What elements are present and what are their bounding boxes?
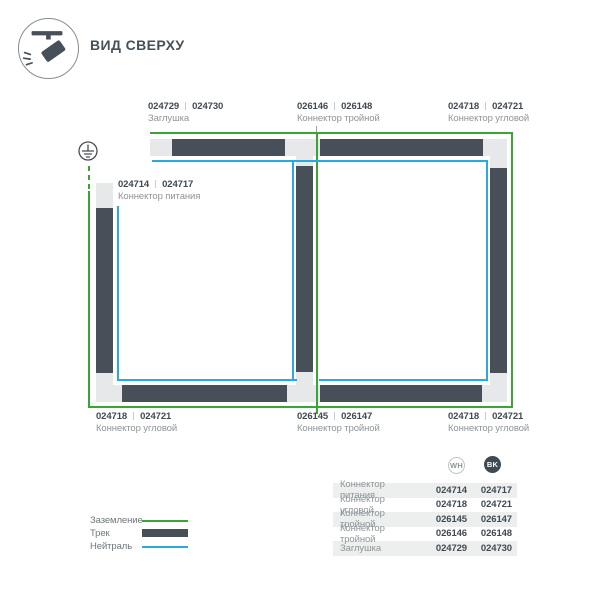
part-name: Заглушка bbox=[148, 113, 223, 124]
part-name: Коннектор питания bbox=[118, 191, 200, 202]
part-code-wh: 024718 bbox=[448, 411, 479, 422]
connector-corner-top-right-leg bbox=[490, 139, 507, 168]
track-segment-left bbox=[96, 208, 113, 373]
earth-ground-icon bbox=[78, 141, 98, 161]
ground-line-middle bbox=[316, 132, 318, 414]
connector-end-cap bbox=[150, 139, 172, 156]
cell-code-bk: 026147 bbox=[467, 514, 517, 525]
legend-label-ground: Заземление bbox=[90, 515, 143, 526]
part-name: Коннектор тройной bbox=[297, 113, 380, 124]
ground-line-left bbox=[88, 191, 90, 408]
code-separator bbox=[334, 412, 335, 420]
part-name: Коннектор угловой bbox=[448, 423, 529, 434]
part-code-bk: 026147 bbox=[341, 411, 372, 422]
part-code-wh: 024729 bbox=[148, 101, 179, 112]
connector-tee-top bbox=[285, 139, 320, 156]
part-label-end-cap: 024729024730 Заглушка bbox=[148, 101, 223, 124]
code-separator bbox=[485, 102, 486, 110]
track-segment-top-left bbox=[172, 139, 285, 156]
ground-line-left-dashed bbox=[88, 166, 90, 193]
legend-swatch-track bbox=[142, 529, 188, 537]
track-spotlight-icon bbox=[18, 18, 79, 79]
code-separator bbox=[155, 180, 156, 188]
page-title: ВИД СВЕРХУ bbox=[90, 37, 184, 53]
neutral-line-bottom-left bbox=[117, 379, 297, 381]
cell-code-bk: 024717 bbox=[467, 485, 517, 496]
track-segment-middle bbox=[296, 166, 313, 372]
cell-code-bk: 024730 bbox=[467, 543, 517, 554]
code-separator bbox=[485, 412, 486, 420]
part-code-wh: 026146 bbox=[297, 101, 328, 112]
track-segment-right bbox=[490, 168, 507, 373]
connector-corner-bottom-right bbox=[482, 385, 507, 402]
legend-swatch-neutral bbox=[142, 546, 188, 548]
part-code-bk: 024721 bbox=[492, 411, 523, 422]
track-segment-bottom-right bbox=[320, 385, 482, 402]
track-segment-top-right bbox=[320, 139, 483, 156]
ground-line-right bbox=[511, 132, 513, 408]
part-label-corner-top-right: 024718024721 Коннектор угловой bbox=[448, 101, 529, 124]
page: ВИД СВЕРХУ bbox=[0, 0, 605, 605]
part-code-wh: 024718 bbox=[96, 411, 127, 422]
column-badge-wh: WH bbox=[448, 457, 465, 474]
cell-code-bk: 024721 bbox=[467, 499, 517, 510]
cell-code-bk: 026148 bbox=[467, 528, 517, 539]
part-code-bk: 024721 bbox=[492, 101, 523, 112]
table-row: Заглушка 024729 024730 bbox=[333, 541, 517, 556]
part-code-wh: 024714 bbox=[118, 179, 149, 190]
code-separator bbox=[133, 412, 134, 420]
part-name: Коннектор угловой bbox=[96, 423, 177, 434]
part-label-power-feed: 024714024717 Коннектор питания bbox=[118, 179, 200, 202]
part-name: Коннектор тройной bbox=[297, 423, 380, 434]
cell-part-name: Коннектор тройной bbox=[333, 523, 421, 545]
neutral-line-bottom-right bbox=[319, 379, 488, 381]
part-name: Коннектор угловой bbox=[448, 113, 529, 124]
part-label-corner-bottom-right: 024718024721 Коннектор угловой bbox=[448, 411, 529, 434]
part-label-tee-bottom: 026145026147 Коннектор тройной bbox=[297, 411, 380, 434]
part-code-bk: 024717 bbox=[162, 179, 193, 190]
cell-code-wh: 026146 bbox=[421, 528, 467, 539]
parts-table: Коннектор питания 024714 024717 Коннекто… bbox=[333, 483, 517, 556]
connector-tee-bottom-stem bbox=[296, 372, 313, 385]
part-code-wh: 024718 bbox=[448, 101, 479, 112]
legend-swatch-ground bbox=[142, 520, 188, 522]
connector-corner-bottom-left bbox=[96, 385, 122, 402]
part-label-corner-bottom-left: 024718024721 Коннектор угловой bbox=[96, 411, 177, 434]
track-segment-bottom-left bbox=[122, 385, 287, 402]
legend-label-track: Трек bbox=[90, 528, 110, 539]
cell-part-name: Заглушка bbox=[333, 543, 421, 554]
neutral-line-middle bbox=[292, 160, 294, 381]
part-code-wh: 026145 bbox=[297, 411, 328, 422]
code-separator bbox=[185, 102, 186, 110]
part-label-tee-top: 026146026148 Коннектор тройной bbox=[297, 101, 380, 124]
ground-line-top bbox=[150, 132, 513, 134]
column-badge-bk: BK bbox=[484, 456, 501, 473]
part-code-bk: 024721 bbox=[140, 411, 171, 422]
part-code-bk: 026148 bbox=[341, 101, 372, 112]
neutral-line-top bbox=[152, 160, 488, 162]
code-separator bbox=[334, 102, 335, 110]
cell-code-wh: 024729 bbox=[421, 543, 467, 554]
cell-code-wh: 024718 bbox=[421, 499, 467, 510]
connector-power-feed bbox=[96, 183, 113, 208]
ground-line-bottom bbox=[88, 406, 513, 408]
table-row: Коннектор тройной 026146 026148 bbox=[333, 527, 517, 542]
cell-code-wh: 026145 bbox=[421, 514, 467, 525]
neutral-line-left bbox=[117, 206, 119, 381]
cell-code-wh: 024714 bbox=[421, 485, 467, 496]
part-code-bk: 024730 bbox=[192, 101, 223, 112]
legend-label-neutral: Нейтраль bbox=[90, 541, 132, 552]
neutral-line-right bbox=[486, 160, 488, 381]
